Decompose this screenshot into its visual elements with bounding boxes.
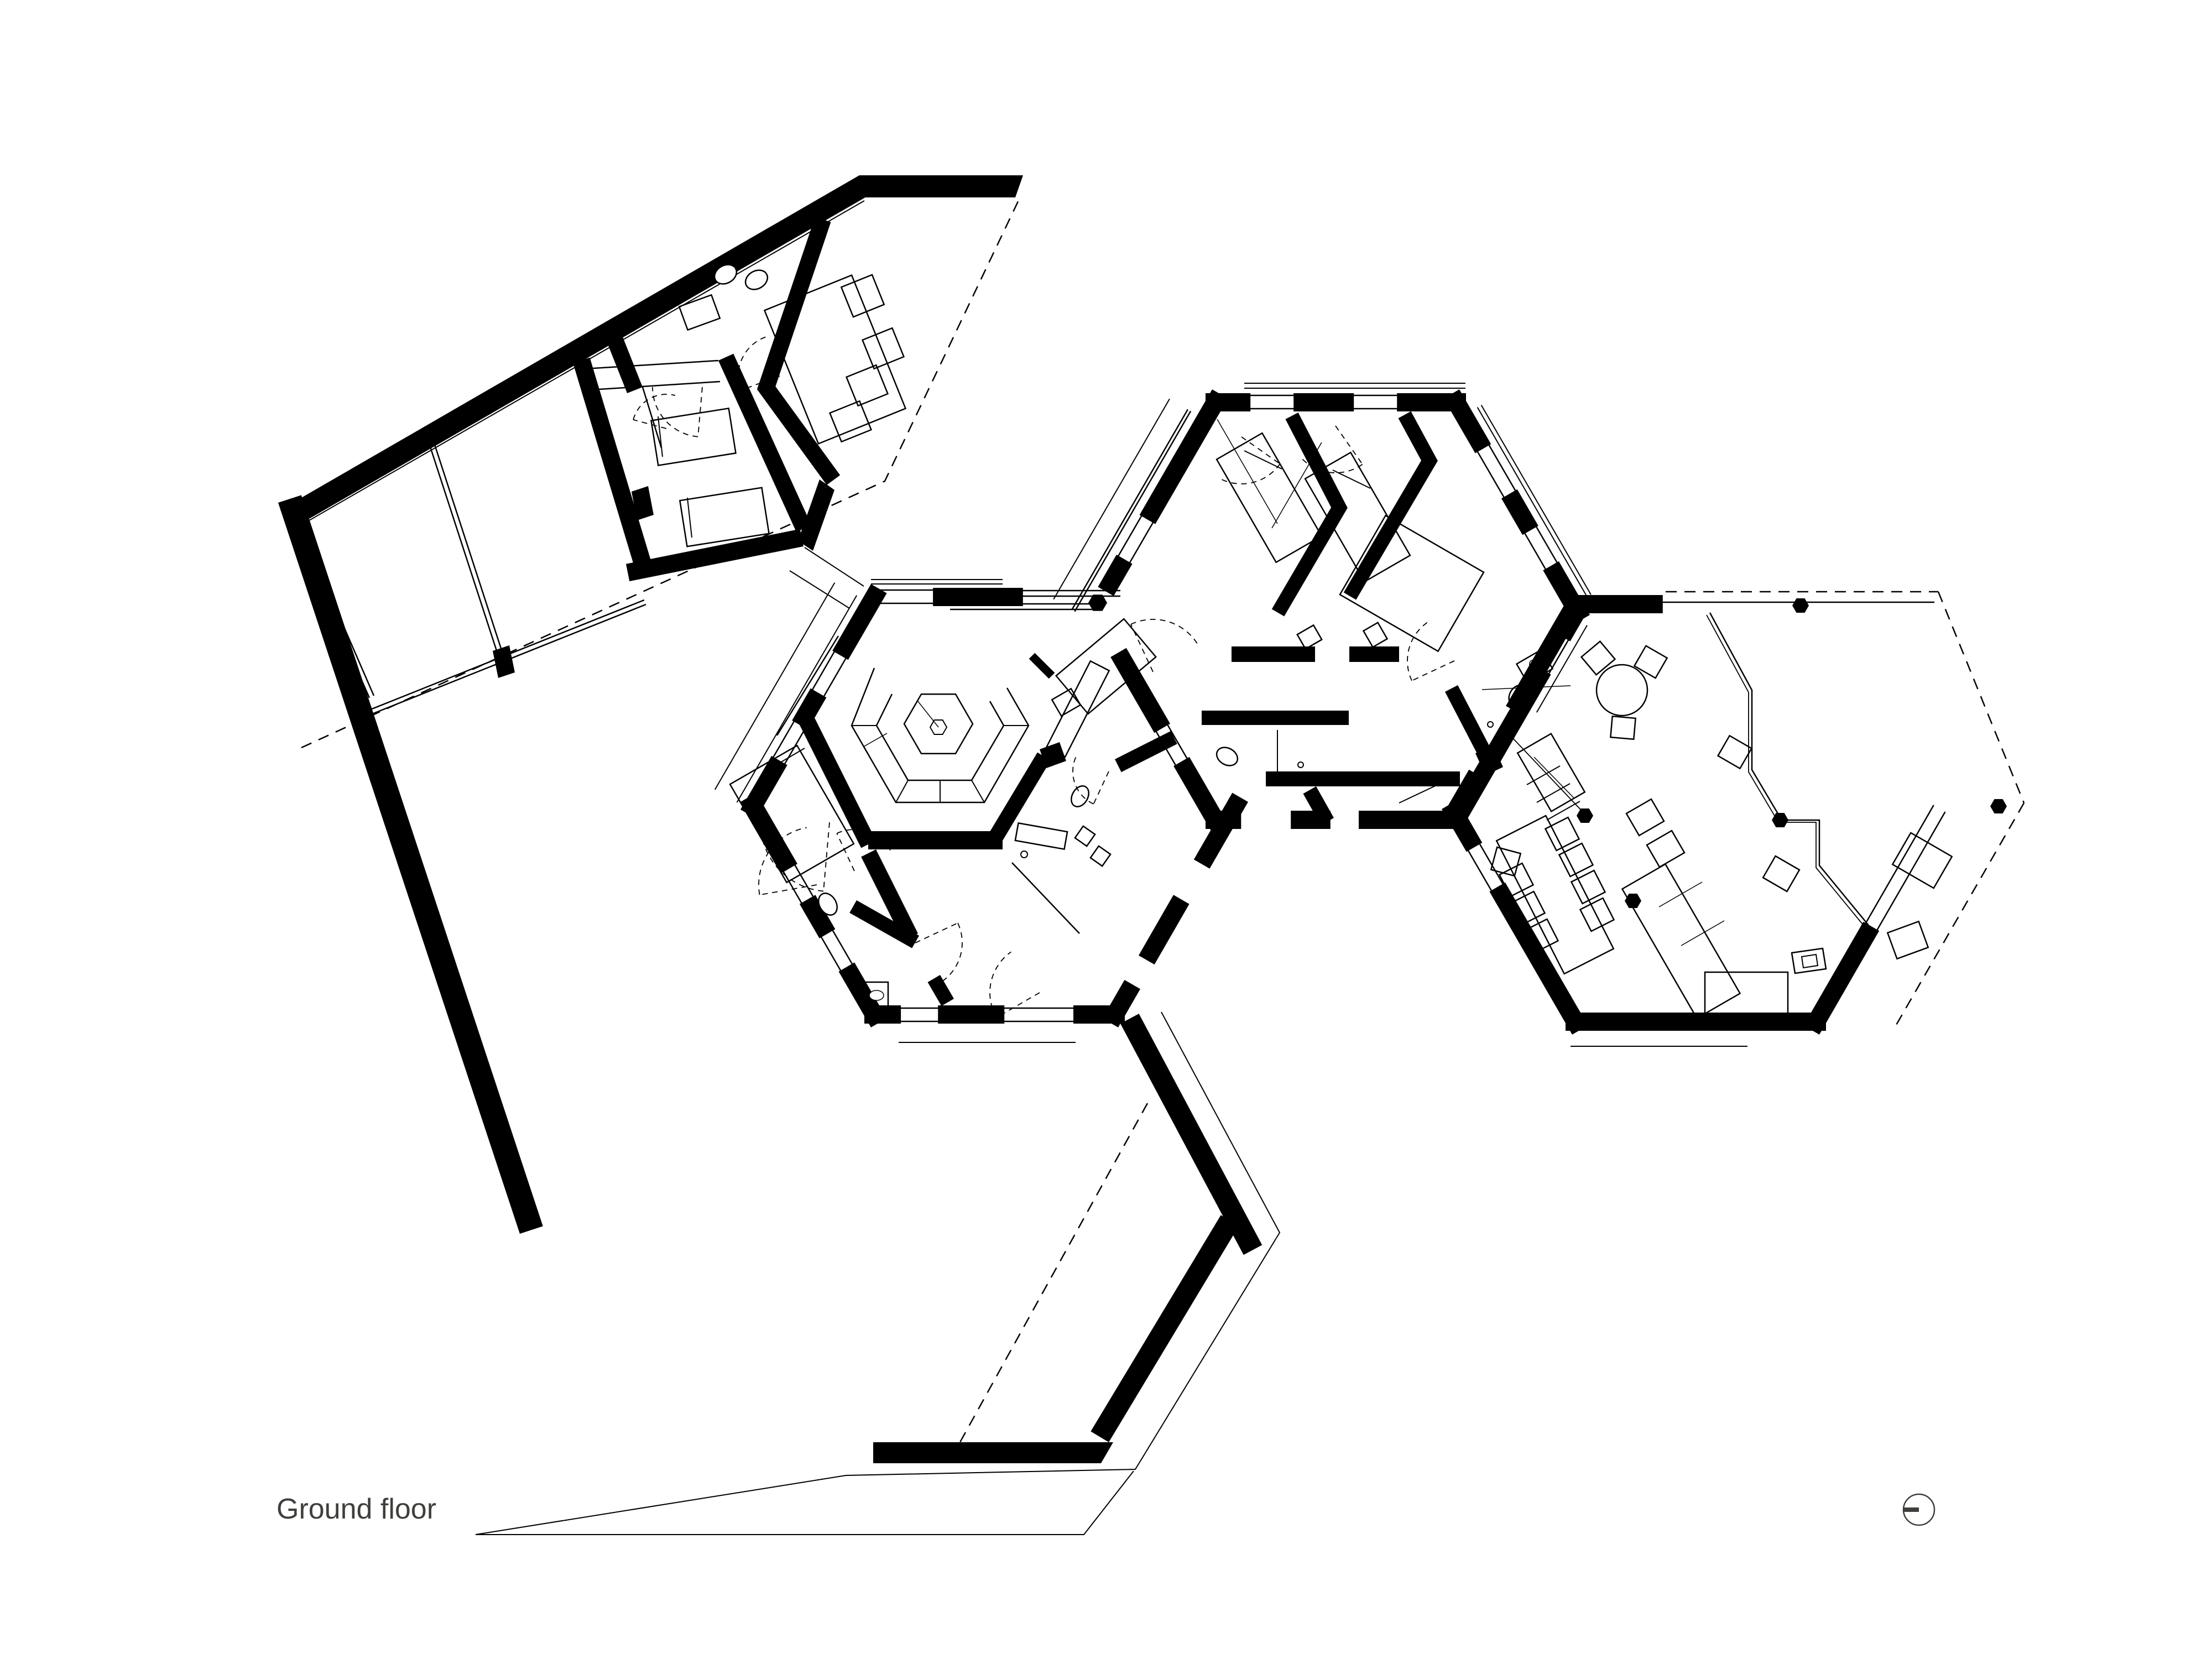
- svg-text:Ground floor: Ground floor: [276, 1493, 436, 1525]
